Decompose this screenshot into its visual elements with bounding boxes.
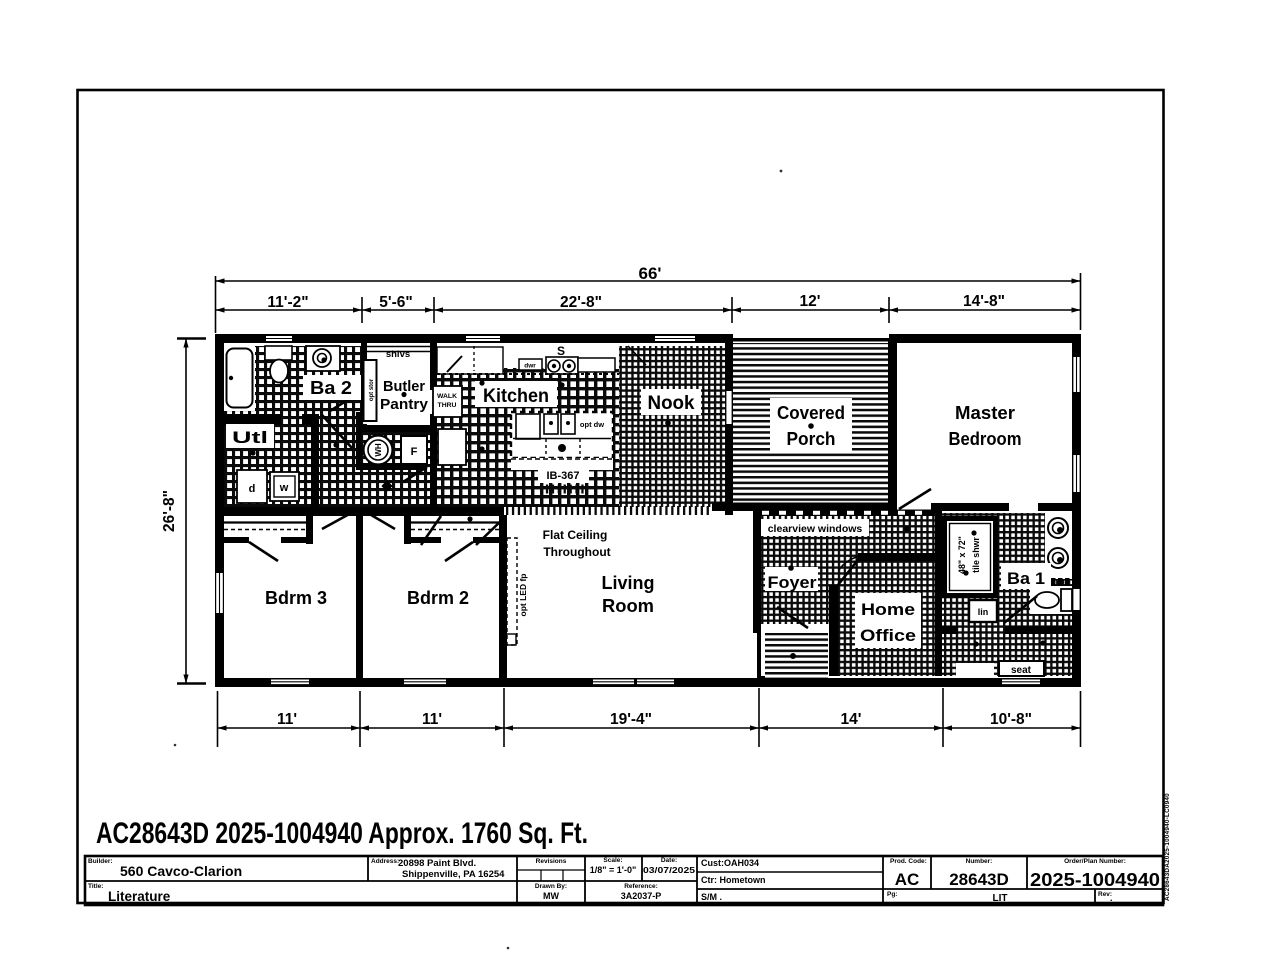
svg-text:seat: seat xyxy=(1011,665,1032,676)
svg-text:Shippenville, PA 16254: Shippenville, PA 16254 xyxy=(402,869,505,880)
svg-text:Kitchen: Kitchen xyxy=(483,386,549,407)
svg-text:03/07/2025: 03/07/2025 xyxy=(643,865,695,875)
svg-text:560 Cavco-Clarion: 560 Cavco-Clarion xyxy=(120,863,242,879)
svg-text:lin: lin xyxy=(978,607,989,617)
svg-text:Scale:: Scale: xyxy=(603,857,622,864)
svg-text:opt dw: opt dw xyxy=(580,420,604,429)
svg-text:Title:: Title: xyxy=(88,883,103,890)
svg-text:28643D: 28643D xyxy=(949,870,1009,889)
svg-text:WALK: WALK xyxy=(437,393,457,400)
svg-text:19'-4": 19'-4" xyxy=(610,711,652,728)
svg-text:Ba 1: Ba 1 xyxy=(1007,569,1045,588)
svg-text:Ctr: Hometown: Ctr: Hometown xyxy=(701,875,766,885)
svg-text:AC28643D 2025-1004940 Approx.: AC28643D 2025-1004940 Approx. 1760 Sq. F… xyxy=(96,817,588,850)
svg-text:S: S xyxy=(557,344,565,358)
svg-text:5'-6": 5'-6" xyxy=(379,294,412,311)
svg-text:11': 11' xyxy=(277,711,297,728)
svg-text:Reference:: Reference: xyxy=(624,883,658,890)
svg-text:Flat Ceiling: Flat Ceiling xyxy=(543,528,608,542)
svg-text:WH: WH xyxy=(374,443,383,457)
svg-text:Bdrm 3: Bdrm 3 xyxy=(265,588,327,608)
svg-text:Builder:: Builder: xyxy=(88,858,113,865)
svg-text:Pg:: Pg: xyxy=(887,891,897,898)
svg-text:Living: Living xyxy=(602,573,655,593)
svg-text:F: F xyxy=(411,446,418,458)
svg-text:11': 11' xyxy=(422,711,442,728)
svg-text:w: w xyxy=(279,482,289,494)
svg-text:Literature: Literature xyxy=(108,889,171,904)
svg-text:clearview windows: clearview windows xyxy=(768,523,863,535)
svg-text:66': 66' xyxy=(639,264,662,283)
svg-text:26'-8": 26'-8" xyxy=(161,490,178,532)
svg-text:Number:: Number: xyxy=(966,858,993,865)
svg-text:20898 Paint Blvd.: 20898 Paint Blvd. xyxy=(398,858,476,869)
svg-text:Bdrm 2: Bdrm 2 xyxy=(407,588,469,608)
svg-text:dwr: dwr xyxy=(524,363,536,370)
svg-text:3A2037-P: 3A2037-P xyxy=(621,891,662,901)
svg-text:AC28643DA2025-1004940-LC0940: AC28643DA2025-1004940-LC0940 xyxy=(1164,793,1171,901)
svg-text:Porch: Porch xyxy=(787,429,836,449)
svg-text:Covered: Covered xyxy=(777,403,845,423)
svg-text:Nook: Nook xyxy=(648,393,695,414)
svg-text:14'-8": 14'-8" xyxy=(963,293,1005,310)
svg-text:22'-8": 22'-8" xyxy=(560,294,602,311)
svg-text:Home: Home xyxy=(861,600,915,619)
svg-text:Room: Room xyxy=(602,596,654,616)
svg-text:opt LED fp: opt LED fp xyxy=(518,574,528,617)
svg-text:opt stor: opt stor xyxy=(369,378,375,401)
svg-text:1/8" = 1'-0": 1/8" = 1'-0" xyxy=(590,865,636,875)
svg-text:LIT: LIT xyxy=(993,893,1008,904)
svg-text:d: d xyxy=(249,483,256,495)
svg-text:Order/Plan Number:: Order/Plan Number: xyxy=(1064,858,1126,865)
svg-text:10'-8": 10'-8" xyxy=(990,711,1032,728)
svg-text:S/M .: S/M . xyxy=(701,892,722,902)
svg-text:Revisions: Revisions xyxy=(536,858,567,865)
svg-text:Master: Master xyxy=(955,403,1015,423)
svg-text:14': 14' xyxy=(841,711,862,728)
svg-text:AC: AC xyxy=(895,870,920,889)
svg-text:Utl: Utl xyxy=(232,428,268,447)
svg-text:11'-2": 11'-2" xyxy=(267,294,308,311)
svg-text:tile shwr: tile shwr xyxy=(971,537,981,573)
svg-text:shlvs: shlvs xyxy=(386,349,410,360)
svg-text:Ba 2: Ba 2 xyxy=(310,378,352,398)
svg-text:Foyer: Foyer xyxy=(768,573,817,592)
svg-text:Prod. Code:: Prod. Code: xyxy=(890,858,927,865)
svg-text:MW: MW xyxy=(543,891,559,901)
svg-text:Office: Office xyxy=(860,626,916,645)
svg-text:12': 12' xyxy=(800,293,821,310)
svg-text:Bedroom: Bedroom xyxy=(949,429,1022,449)
svg-text:Throughout: Throughout xyxy=(543,545,610,559)
svg-text:48" x 72": 48" x 72" xyxy=(957,536,967,574)
svg-text:IB-367: IB-367 xyxy=(546,470,579,482)
svg-text:Pantry: Pantry xyxy=(380,396,429,413)
svg-text:Cust:OAH034: Cust:OAH034 xyxy=(701,858,759,868)
svg-text:.: . xyxy=(1110,893,1113,903)
svg-text:THRU: THRU xyxy=(438,402,457,409)
svg-text:Date:: Date: xyxy=(661,857,677,864)
svg-text:Drawn By:: Drawn By: xyxy=(535,883,567,890)
svg-text:2025-1004940: 2025-1004940 xyxy=(1030,870,1160,890)
svg-text:Address:: Address: xyxy=(371,858,399,865)
